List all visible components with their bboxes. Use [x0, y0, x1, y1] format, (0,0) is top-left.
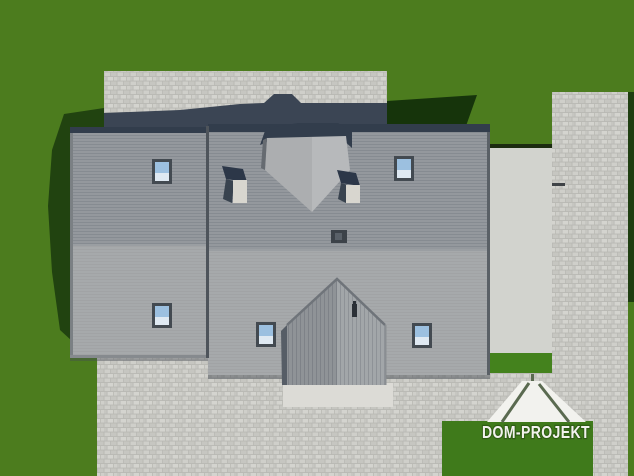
wing-ridge-line	[70, 244, 208, 246]
terrace-step-line	[552, 183, 565, 186]
skylight-main-lower-right	[412, 323, 432, 348]
lawn-patch	[488, 353, 552, 373]
logo-text: DOM-PROJEKT	[482, 422, 590, 442]
chimney-right	[337, 170, 360, 203]
gable-shadow-sliver	[281, 325, 287, 385]
logo-apex-tick	[531, 374, 534, 382]
skylight-wing-lower	[152, 303, 172, 328]
skylight-glass-reflection	[397, 170, 411, 178]
gable-finial	[352, 304, 357, 317]
skylight-main-upper-right	[394, 156, 414, 181]
roof-vent	[331, 230, 347, 243]
terrace	[490, 148, 552, 353]
grass-edge-sliver	[628, 92, 634, 302]
left-wing-roof	[70, 127, 208, 358]
main-ridge-line	[208, 249, 490, 251]
skylight-glass-reflection	[259, 336, 273, 344]
main-right-edge	[487, 132, 490, 375]
chimney-left	[222, 166, 247, 203]
chimney-body	[346, 185, 360, 203]
wing-roof-eave-shadow	[70, 358, 208, 361]
vent-inner	[335, 233, 342, 240]
wing-upper-slope-tiles	[70, 133, 208, 245]
skylight-glass-reflection	[155, 173, 169, 181]
skylight-glass-reflection	[155, 317, 169, 325]
wing-eave-band	[70, 127, 208, 133]
gable-right-edge	[385, 325, 387, 385]
aerial-render-canvas: DOM-PROJEKT	[0, 0, 634, 476]
wing-bottom-edge	[70, 355, 208, 358]
wing-lower-slope-tiles	[70, 245, 208, 358]
porch-floor	[283, 383, 393, 407]
skylight-main-lower-left	[256, 322, 276, 347]
roof-junction-line	[206, 126, 209, 358]
gable-finial-tip	[353, 301, 356, 305]
chimney-body	[233, 180, 247, 203]
skylight-wing-upper	[152, 159, 172, 184]
wing-left-edge	[70, 133, 73, 358]
skylight-glass-reflection	[415, 337, 429, 345]
